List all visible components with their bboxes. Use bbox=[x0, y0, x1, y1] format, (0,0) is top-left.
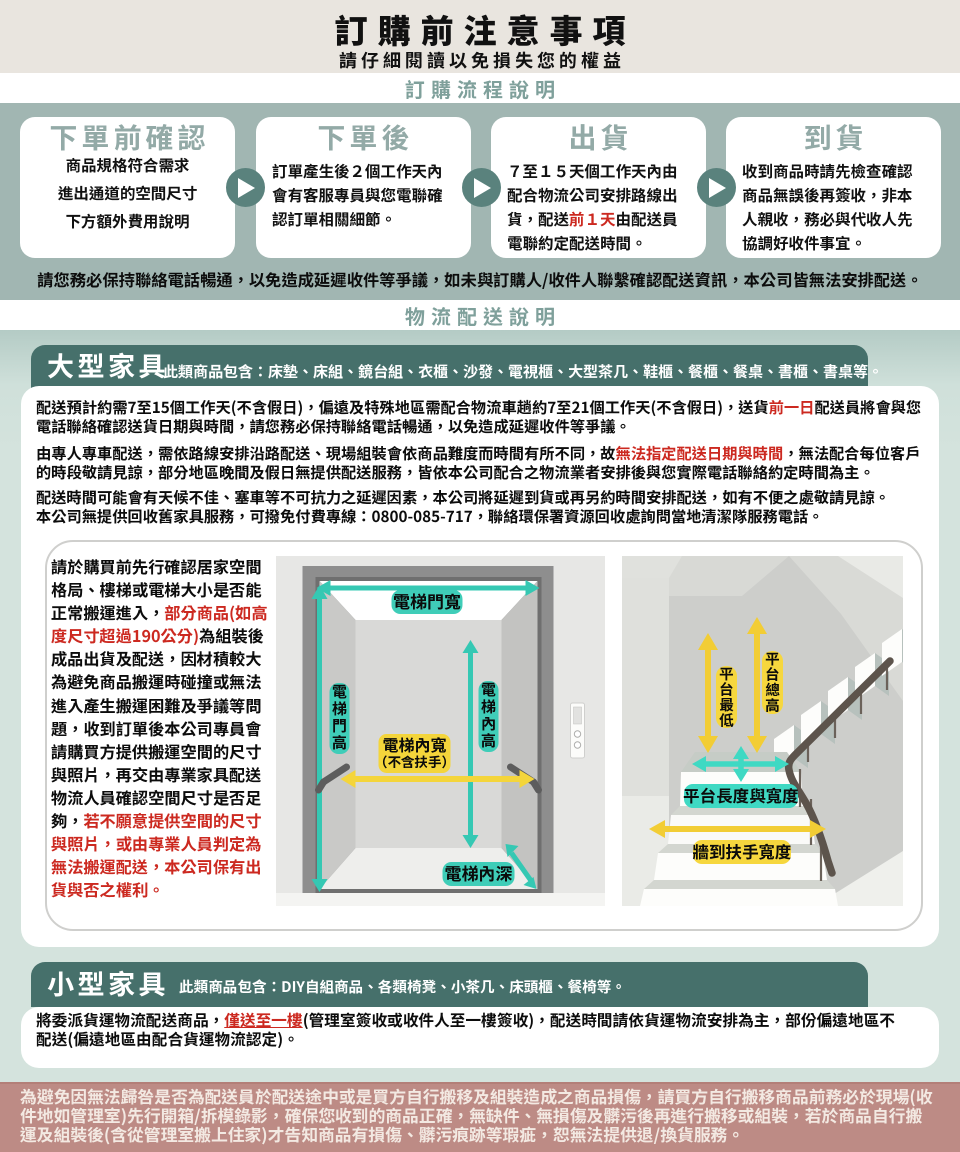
svg-text:（不含扶手）: （不含扶手） bbox=[374, 751, 455, 771]
svg-text:電梯內深: 電梯內深 bbox=[444, 860, 512, 885]
svg-text:高: 高 bbox=[765, 695, 780, 716]
svg-text:低: 低 bbox=[719, 710, 734, 731]
svg-text:牆到扶手寬度: 牆到扶手寬度 bbox=[693, 839, 793, 863]
svg-text:平台長度與寬度: 平台長度與寬度 bbox=[683, 783, 799, 807]
svg-text:高: 高 bbox=[480, 730, 495, 751]
svg-text:電梯門寬: 電梯門寬 bbox=[393, 588, 461, 613]
svg-text:高: 高 bbox=[331, 732, 346, 753]
